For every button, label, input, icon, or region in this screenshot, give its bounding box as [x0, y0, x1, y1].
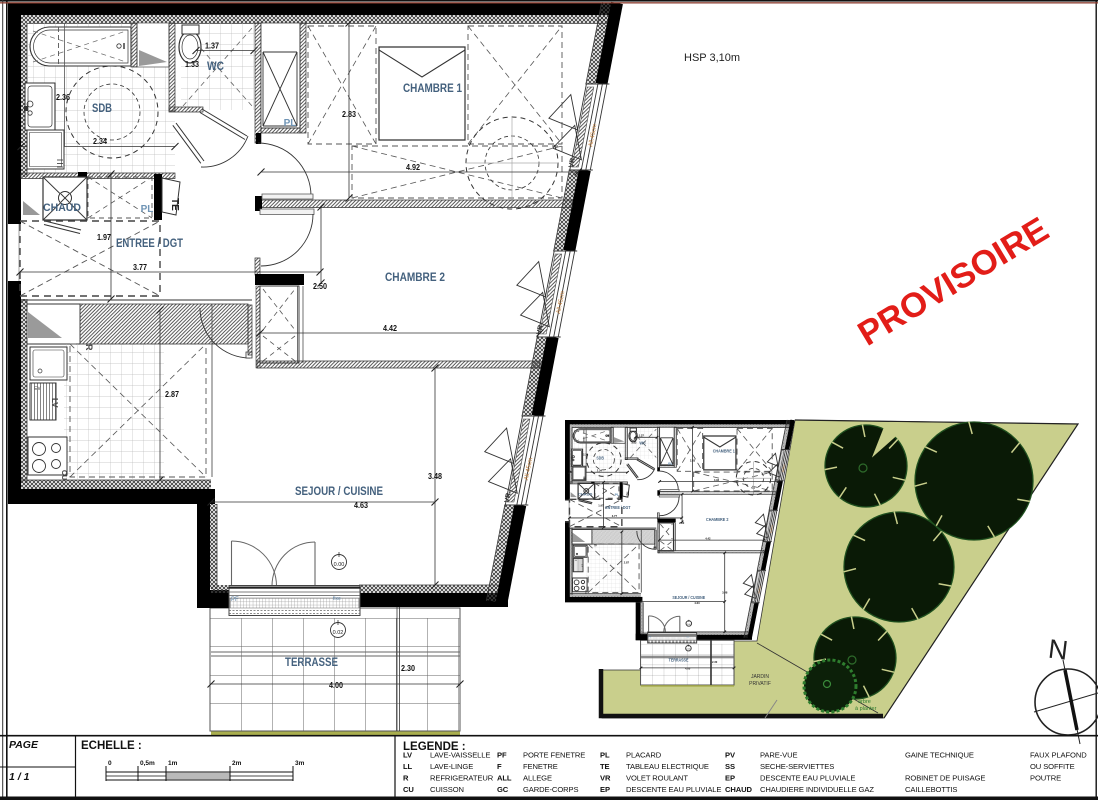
- svg-text:3m: 3m: [295, 760, 305, 767]
- svg-text:ALLEGE: ALLEGE: [523, 774, 552, 783]
- svg-text:PF: PF: [231, 597, 239, 603]
- svg-text:PLACARD: PLACARD: [626, 751, 662, 760]
- svg-text:SEJOUR / CUISINE: SEJOUR / CUISINE: [295, 484, 383, 498]
- svg-text:CHAMBRE 2: CHAMBRE 2: [385, 270, 445, 284]
- svg-text:CHAUD: CHAUD: [725, 785, 753, 794]
- svg-text:LAVE-LINGE: LAVE-LINGE: [430, 762, 473, 771]
- svg-text:PRIVATIF: PRIVATIF: [749, 681, 771, 687]
- svg-text:1m: 1m: [168, 760, 178, 767]
- svg-text:F: F: [497, 762, 502, 771]
- svg-text:EP: EP: [725, 774, 735, 783]
- svg-text:CAILLEBOTTIS: CAILLEBOTTIS: [905, 785, 957, 794]
- svg-text:0.00: 0.00: [334, 562, 345, 568]
- svg-text:REFRIGERATEUR: REFRIGERATEUR: [430, 774, 494, 783]
- svg-text:0: 0: [108, 760, 112, 767]
- svg-text:TE: TE: [169, 198, 180, 211]
- svg-text:GAINE TECHNIQUE: GAINE TECHNIQUE: [905, 751, 974, 760]
- svg-text:CU: CU: [60, 470, 67, 480]
- svg-text:PORTE FENETRE: PORTE FENETRE: [523, 751, 585, 760]
- svg-text:EP: EP: [600, 785, 610, 794]
- svg-text:2.36: 2.36: [56, 93, 70, 102]
- svg-text:TABLEAU ELECTRIQUE: TABLEAU ELECTRIQUE: [626, 762, 709, 771]
- svg-text:R: R: [403, 774, 409, 783]
- svg-text:ENTREE / DGT: ENTREE / DGT: [116, 236, 184, 250]
- svg-text:VR: VR: [600, 774, 611, 783]
- svg-text:CUISSON: CUISSON: [430, 785, 464, 794]
- svg-text:DESCENTE EAU PLUVIALE: DESCENTE EAU PLUVIALE: [626, 785, 721, 794]
- svg-text:CHAUD: CHAUD: [43, 202, 81, 214]
- svg-text:2.30: 2.30: [401, 664, 415, 673]
- svg-text:TE: TE: [600, 762, 610, 771]
- svg-text:PF: PF: [497, 751, 507, 760]
- svg-text:2.83: 2.83: [342, 110, 356, 119]
- svg-text:JARDIN: JARDIN: [751, 674, 769, 680]
- svg-text:2.34: 2.34: [93, 137, 107, 146]
- svg-text:GARDE-CORPS: GARDE-CORPS: [523, 785, 578, 794]
- svg-text:4.63: 4.63: [354, 501, 368, 510]
- svg-text:ROBINET DE PUISAGE: ROBINET DE PUISAGE: [905, 774, 985, 783]
- svg-text:PAGE: PAGE: [9, 739, 39, 751]
- svg-text:CHAUDIERE INDIVIDUELLE GAZ: CHAUDIERE INDIVIDUELLE GAZ: [760, 785, 874, 794]
- svg-text:1.37: 1.37: [205, 42, 219, 51]
- svg-text:LV: LV: [403, 751, 413, 760]
- svg-text:ALL: ALL: [497, 774, 512, 783]
- svg-text:arbre: arbre: [858, 699, 871, 705]
- svg-text:N: N: [1047, 634, 1070, 666]
- svg-text:LV: LV: [50, 398, 59, 408]
- svg-text:CU: CU: [403, 785, 414, 794]
- svg-text:SECHE-SERVIETTES: SECHE-SERVIETTES: [760, 762, 834, 771]
- svg-text:CHAMBRE 1: CHAMBRE 1: [403, 81, 462, 95]
- svg-text:3.48: 3.48: [428, 472, 442, 481]
- svg-text:PL: PL: [284, 118, 297, 129]
- svg-text:LAVE-VAISSELLE: LAVE-VAISSELLE: [430, 751, 490, 760]
- svg-text:4.42: 4.42: [383, 324, 397, 333]
- svg-text:FAUX PLAFOND: FAUX PLAFOND: [1030, 751, 1087, 760]
- svg-text:4.92: 4.92: [406, 163, 420, 172]
- svg-text:3.77: 3.77: [133, 263, 147, 272]
- svg-text:SDB: SDB: [92, 101, 112, 115]
- svg-text:1 / 1: 1 / 1: [9, 771, 30, 783]
- svg-text:TERRASSE: TERRASSE: [285, 655, 338, 669]
- svg-text:ECHELLE :: ECHELLE :: [81, 740, 142, 752]
- svg-text:GC: GC: [497, 785, 509, 794]
- svg-text:PL: PL: [141, 204, 154, 215]
- svg-text:2m: 2m: [232, 760, 242, 767]
- svg-text:DESCENTE EAU PLUVIALE: DESCENTE EAU PLUVIALE: [760, 774, 855, 783]
- svg-text:1.33: 1.33: [185, 60, 199, 69]
- svg-text:0,5m: 0,5m: [140, 760, 155, 767]
- svg-text:PL: PL: [600, 751, 610, 760]
- svg-text:à planter: à planter: [855, 706, 877, 712]
- svg-text:WC: WC: [207, 59, 224, 73]
- svg-text:FENETRE: FENETRE: [523, 762, 558, 771]
- svg-text:VOLET ROULANT: VOLET ROULANT: [626, 774, 688, 783]
- svg-text:fixe: fixe: [333, 596, 341, 602]
- svg-text:4.00: 4.00: [329, 681, 343, 690]
- svg-text:SS: SS: [725, 762, 735, 771]
- svg-text:2.50: 2.50: [313, 282, 327, 291]
- svg-text:0.02: 0.02: [333, 630, 344, 636]
- svg-text:PARE-VUE: PARE-VUE: [760, 751, 797, 760]
- svg-text:POUTRE: POUTRE: [1030, 774, 1061, 783]
- svg-text:PV: PV: [725, 751, 736, 760]
- svg-text:HSP 3,10m: HSP 3,10m: [684, 52, 740, 64]
- svg-text:1.97: 1.97: [97, 233, 111, 242]
- svg-text:OU SOFFITE: OU SOFFITE: [1030, 762, 1075, 771]
- svg-text:LL: LL: [403, 762, 413, 771]
- svg-text:2.87: 2.87: [165, 390, 179, 399]
